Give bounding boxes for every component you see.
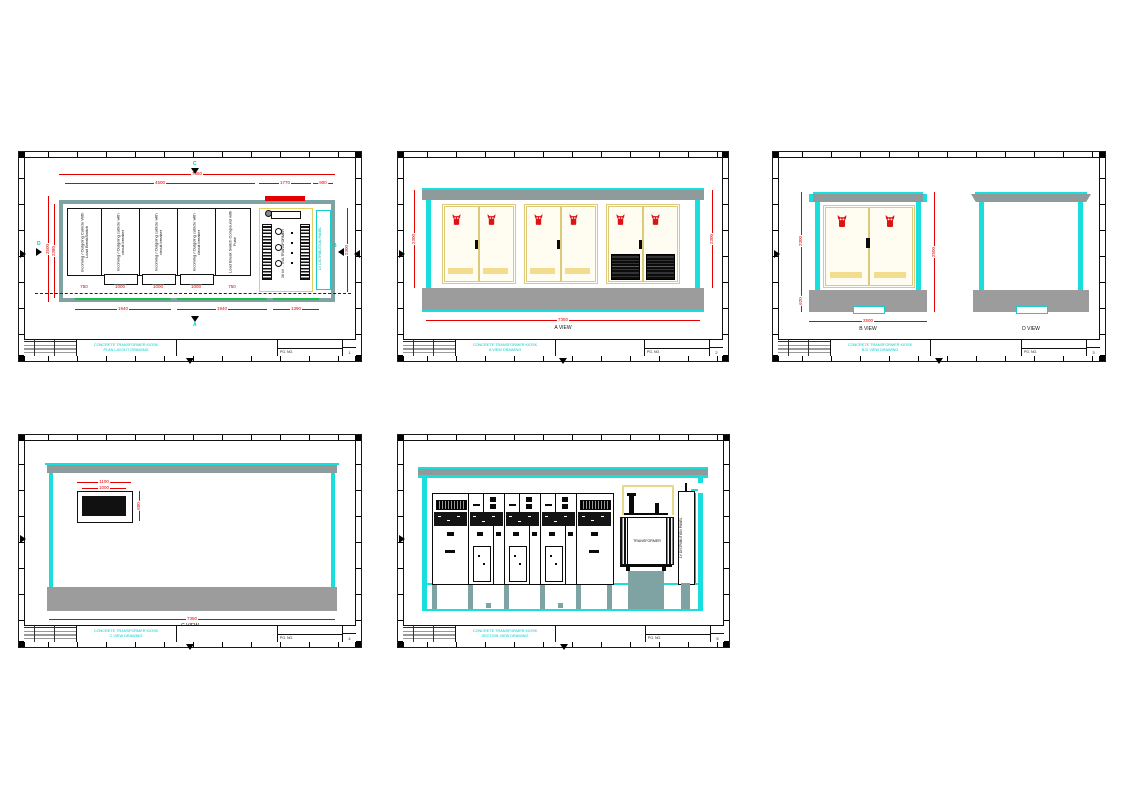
view-marker-right: B xyxy=(333,244,337,249)
plinth-trim xyxy=(422,310,704,312)
danger-icon xyxy=(487,214,496,225)
page-number-box: 3 xyxy=(1086,340,1100,356)
title-cell: CONCRETE TRANSFORMER KIOSK A VIEW DRAWIN… xyxy=(455,340,556,356)
cubicle-4: Incoming / Outgoing cubicle with circuit… xyxy=(177,208,217,276)
page-number-label: PG. NO. xyxy=(647,351,660,355)
centering-mark-bottom xyxy=(935,358,943,364)
d-view-label: D VIEW xyxy=(996,326,1066,332)
dim-c3: 1000 xyxy=(152,285,164,290)
hv-bushing-cap xyxy=(627,493,636,496)
page-number: 2 xyxy=(715,350,717,355)
mimic-band xyxy=(506,512,539,526)
danger-icon xyxy=(837,215,847,227)
notes-cell xyxy=(176,340,278,356)
page-number: 4 xyxy=(348,636,350,641)
title-cell: CONCRETE TRANSFORMER KIOSK B-D VIEW DRAW… xyxy=(830,340,931,356)
centering-mark-bottom xyxy=(186,358,194,364)
dim-c2: 1000 xyxy=(114,285,126,290)
indicator xyxy=(473,504,480,506)
cubicle-4-label: Incoming / Outgoing cubicle with circuit… xyxy=(178,209,216,275)
control-button xyxy=(549,532,555,536)
door-louver xyxy=(611,254,640,280)
transformer-bushing xyxy=(265,210,272,217)
lv-stud xyxy=(291,262,293,264)
divider xyxy=(645,348,709,349)
switchgear-unit-3 xyxy=(504,493,542,585)
dim-vent-h: 600 xyxy=(137,501,142,511)
danger-icon xyxy=(616,214,625,225)
plinth xyxy=(47,587,337,611)
cubicle-3-label: Incoming / Outgoing cubicle with circuit… xyxy=(140,209,178,275)
cubicle-5-label: Load Break Switch Compound with Fuse xyxy=(216,209,250,275)
page-number: 1 xyxy=(348,350,350,355)
trench-floor xyxy=(422,609,703,611)
roof-trim-bottom xyxy=(418,475,708,478)
view-marker-left-arrow xyxy=(36,248,42,256)
notes-cell xyxy=(555,340,645,356)
roof xyxy=(422,190,704,200)
lv-stud xyxy=(291,252,293,254)
dim-vent-w: 1100 xyxy=(98,480,110,485)
b-wall-left xyxy=(815,202,820,290)
b-view-label: B VIEW xyxy=(833,326,903,332)
transformer-label: 36 kV ... kVA TRANSFORMER xyxy=(281,226,289,282)
sheet-a-view[interactable]: 2300 2300 7350 A VIEW CONCRETE TRANSFORM… xyxy=(397,151,729,362)
notes-cell xyxy=(555,626,646,642)
drawing-subtitle: SECTION VIEW DRAWING xyxy=(482,634,529,639)
divider xyxy=(646,634,710,635)
divider xyxy=(1022,348,1086,349)
notes-cell xyxy=(176,626,278,642)
lv-stud xyxy=(291,242,293,244)
switchgear-unit-4 xyxy=(540,493,578,585)
control-button xyxy=(591,532,598,536)
drawing-subtitle: PLAN LAYOUT DRAWING xyxy=(103,348,148,353)
dim-right: 2300 xyxy=(710,233,715,245)
page-number-box: 5 xyxy=(710,626,724,642)
dim-c4: 1000 xyxy=(190,285,202,290)
door-handle xyxy=(475,240,478,249)
cable-door xyxy=(509,546,527,582)
centering-mark-right xyxy=(354,250,360,258)
relay-box xyxy=(526,504,532,509)
page-number: 3 xyxy=(1092,350,1094,355)
revision-table xyxy=(403,626,456,642)
dim-left: 2300 xyxy=(412,233,417,245)
d-plinth-notch xyxy=(1016,306,1048,314)
dim-bottom: 7350 xyxy=(557,318,569,323)
cubicle-1-label: Incoming / Outgoing Cubicle With Load Br… xyxy=(68,209,102,275)
transformer-top-bar xyxy=(271,211,301,219)
revision-table xyxy=(24,340,77,356)
dim-vent-w2: 1000 xyxy=(98,486,110,491)
transformer-radiator-right xyxy=(300,224,310,280)
lv-panel-stub xyxy=(685,483,687,491)
number-cell: PG. NO. 4 xyxy=(278,626,356,642)
vent-louver xyxy=(82,496,126,516)
drawing-subtitle: C VIEW DRAWING xyxy=(110,634,143,639)
door-handle xyxy=(866,238,870,248)
wall-right xyxy=(331,473,335,587)
page-number-box: 4 xyxy=(342,626,356,642)
dim-left-outer: 2500 xyxy=(46,243,51,255)
dim-switchgear: 4500 xyxy=(154,181,166,186)
b-wall-right xyxy=(916,202,921,290)
roof-louver-marker xyxy=(265,196,305,201)
switchgear-unit-2 xyxy=(468,493,506,585)
support-leg xyxy=(576,585,581,609)
label-plate xyxy=(589,550,599,553)
lv-panel-pedestal xyxy=(681,583,690,609)
title-cell: CONCRETE TRANSFORMER KIOSK C VIEW DRAWIN… xyxy=(76,626,177,642)
door-vent xyxy=(448,268,473,274)
title-cell: CONCRETE TRANSFORMER KIOSK SECTION VIEW … xyxy=(455,626,556,642)
drawing-subtitle: A VIEW DRAWING xyxy=(489,348,521,353)
centering-mark-left xyxy=(20,535,26,543)
dim-b-left: 2300 xyxy=(799,235,804,247)
indicator xyxy=(545,504,552,506)
mimic-band xyxy=(578,512,611,526)
page-number: 5 xyxy=(716,636,718,641)
section-line xyxy=(35,293,351,294)
panel-divider xyxy=(483,494,484,512)
view-marker-top-arrow xyxy=(191,168,199,174)
cubicle-3: Incoming / Outgoing cubicle with circuit… xyxy=(139,208,179,276)
panel-divider xyxy=(493,526,494,584)
door-louver xyxy=(646,254,675,280)
relay-box xyxy=(526,497,532,502)
panel-divider xyxy=(519,494,520,512)
sheet-bd-view[interactable]: 2300 620 2500 2500 B VIEW D VIEW CONCRET… xyxy=(772,151,1106,362)
notes-cell xyxy=(930,340,1022,356)
number-cell: PG. NO. 3 xyxy=(1022,340,1100,356)
dim-c5: 750 xyxy=(227,285,237,290)
door-handle xyxy=(639,240,642,249)
door-vent xyxy=(830,272,862,278)
dim-transformer: 1770 xyxy=(279,181,291,186)
page-number-box: 2 xyxy=(709,340,723,356)
relay-box xyxy=(562,504,568,509)
view-marker-bottom: A xyxy=(193,323,197,328)
door-sill xyxy=(273,298,319,300)
number-cell: PG. NO. 5 xyxy=(646,626,724,642)
number-cell: PG. NO. 1 xyxy=(278,340,356,356)
lv-bushing xyxy=(655,503,659,513)
plinth xyxy=(422,288,704,310)
indicator xyxy=(509,504,516,506)
danger-icon xyxy=(651,214,660,225)
wall-left xyxy=(422,478,427,611)
support-leg xyxy=(540,585,545,609)
view-marker-left: D xyxy=(37,242,41,247)
wall-right xyxy=(698,478,703,611)
relay-box xyxy=(562,497,568,502)
centering-mark-bottom xyxy=(560,644,568,650)
title-block: CONCRETE TRANSFORMER KIOSK C VIEW DRAWIN… xyxy=(24,625,356,642)
control-button xyxy=(477,532,483,536)
danger-icon xyxy=(534,214,543,225)
dim-left-inner: 2380 xyxy=(52,245,57,257)
page-number-box: 1 xyxy=(342,340,356,356)
centering-mark-left xyxy=(774,250,780,258)
transformer-body: TRANSFORMER xyxy=(627,517,667,565)
panel-divider xyxy=(565,526,566,584)
centering-mark-left xyxy=(20,250,26,258)
cubicle-1: Incoming / Outgoing Cubicle With Load Br… xyxy=(67,208,103,276)
switchgear-unit-5 xyxy=(576,493,614,585)
page-number-label: PG. NO. xyxy=(280,637,293,641)
page-number-label: PG. NO. xyxy=(280,351,293,355)
sheet-plan[interactable]: Incoming / Outgoing Cubicle With Load Br… xyxy=(18,151,362,362)
mimic-band xyxy=(470,512,503,526)
door-vent xyxy=(483,268,508,274)
control-button xyxy=(532,532,537,536)
control-button xyxy=(496,532,501,536)
dim-bottom: 7350 xyxy=(186,617,198,622)
dim-lv: 900 xyxy=(318,181,328,186)
title-cell: CONCRETE TRANSFORMER KIOSK PLAN LAYOUT D… xyxy=(76,340,177,356)
centering-mark-left xyxy=(399,535,405,543)
door-vent xyxy=(565,268,590,274)
revision-table xyxy=(24,626,77,642)
panel-divider xyxy=(555,494,556,512)
page-number-label: PG. NO. xyxy=(1024,351,1037,355)
centering-mark-bottom xyxy=(186,644,194,650)
support-leg xyxy=(468,585,473,609)
mimic-band xyxy=(434,512,467,526)
title-block: CONCRETE TRANSFORMER KIOSK B-D VIEW DRAW… xyxy=(778,339,1100,356)
support-leg xyxy=(432,585,437,609)
wall-right xyxy=(695,200,700,288)
wall-left xyxy=(49,473,53,587)
trench-block xyxy=(486,603,491,608)
switchgear-unit-1 xyxy=(432,493,470,585)
busbar-panel xyxy=(580,500,611,510)
lv-panel-label: LV DISTRIBUTION PANEL xyxy=(318,214,327,284)
transformer-label: TRANSFORMER xyxy=(633,539,661,543)
tank-lid xyxy=(624,513,668,515)
danger-icon xyxy=(452,214,461,225)
b-roof xyxy=(809,194,927,202)
dim-b2: 1940 xyxy=(216,307,228,312)
title-block: CONCRETE TRANSFORMER KIOSK SECTION VIEW … xyxy=(403,625,724,642)
sheet-c-view[interactable]: 1100 1000 600 7350 C VIEW CONCRETE TRANS… xyxy=(18,434,362,648)
wall-right-gap xyxy=(698,483,703,493)
roof xyxy=(47,465,337,473)
danger-icon xyxy=(885,215,895,227)
cable-door xyxy=(545,546,563,582)
d-wall-right xyxy=(1078,202,1083,290)
door-sill xyxy=(75,298,171,300)
d-wall-left xyxy=(979,202,984,290)
cubicle-2-label: Incoming / Outgoing cubicle with circuit… xyxy=(102,209,140,275)
b-roof-cap xyxy=(923,194,927,202)
d-roof-trim xyxy=(975,192,1087,194)
divider xyxy=(278,634,342,635)
transformer-radiator-left xyxy=(262,224,272,280)
d-roof xyxy=(971,194,1091,202)
door-vent xyxy=(530,268,555,274)
lv-panel: LV DISTRIBUTION PANEL xyxy=(678,491,695,585)
centering-mark-left xyxy=(399,250,405,258)
control-button xyxy=(513,532,519,536)
number-cell: PG. NO. 2 xyxy=(645,340,723,356)
door-vent xyxy=(874,272,906,278)
drawing-subtitle: B-D VIEW DRAWING xyxy=(862,348,899,353)
dim-b-right: 2500 xyxy=(932,246,937,258)
danger-icon xyxy=(569,214,578,225)
support-leg xyxy=(607,585,612,609)
cubicle-2: Incoming / Outgoing cubicle with circuit… xyxy=(101,208,141,276)
lv-panel-label: LV DISTRIBUTION PANEL xyxy=(679,492,694,584)
dim-b1: 1940 xyxy=(117,307,129,312)
busbar-panel xyxy=(436,500,467,510)
title-block: CONCRETE TRANSFORMER KIOSK PLAN LAYOUT D… xyxy=(24,339,356,356)
view-marker-top: C xyxy=(193,162,197,167)
divider xyxy=(278,348,342,349)
mimic-band xyxy=(542,512,575,526)
dim-c1: 750 xyxy=(79,285,89,290)
support-leg xyxy=(504,585,509,609)
cable-door xyxy=(473,546,491,582)
transformer-pedestal xyxy=(628,571,664,609)
cubicle-5: Load Break Switch Compound with Fuse xyxy=(215,208,251,276)
lv-stud xyxy=(291,232,293,234)
b-plinth-notch xyxy=(853,306,885,314)
page-number-label: PG. NO. xyxy=(648,637,661,641)
dim-b-bottom: 2500 xyxy=(862,319,874,324)
b-roof-cap xyxy=(809,194,813,202)
relay-box xyxy=(490,504,496,509)
door-sill xyxy=(177,298,267,300)
dim-right: 2300 xyxy=(345,244,350,256)
dim-b-plinth: 620 xyxy=(799,296,804,306)
control-button xyxy=(568,532,573,536)
hv-bushing xyxy=(629,495,634,513)
panel-divider xyxy=(529,526,530,584)
revision-table xyxy=(403,340,456,356)
revision-table xyxy=(778,340,831,356)
view-marker-right-arrow xyxy=(338,248,344,256)
sheet-section[interactable]: TRANSFORMER LV DISTRIBUTION PANEL CONCRE… xyxy=(397,434,730,648)
door-handle xyxy=(557,240,560,249)
centering-mark-bottom xyxy=(559,358,567,364)
relay-box xyxy=(490,497,496,502)
view-label: A VIEW xyxy=(398,325,728,331)
wall-left xyxy=(426,200,431,288)
title-block: CONCRETE TRANSFORMER KIOSK A VIEW DRAWIN… xyxy=(403,339,723,356)
dim-b3: 1390 xyxy=(290,307,302,312)
label-plate xyxy=(445,550,455,553)
trench-block xyxy=(558,603,563,608)
control-button xyxy=(447,532,454,536)
